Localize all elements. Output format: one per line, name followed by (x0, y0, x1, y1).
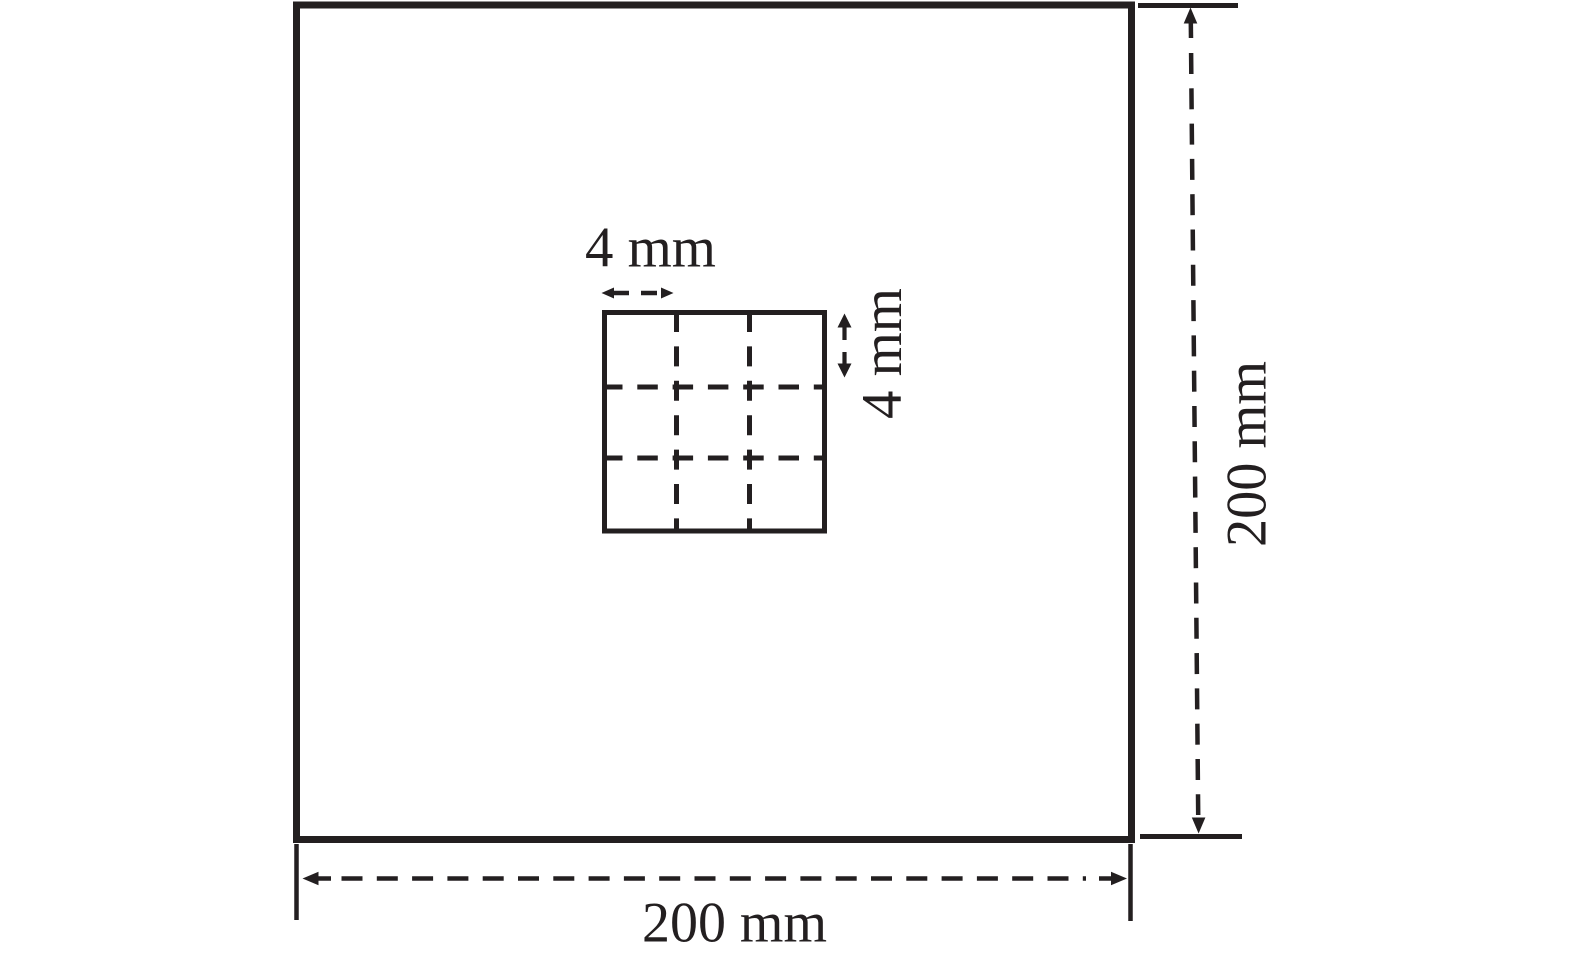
svg-text:4 mm: 4 mm (851, 288, 914, 419)
svg-text:4 mm: 4 mm (585, 217, 716, 280)
svg-text:200 mm: 200 mm (642, 892, 827, 955)
svg-text:200 mm: 200 mm (1216, 361, 1279, 547)
